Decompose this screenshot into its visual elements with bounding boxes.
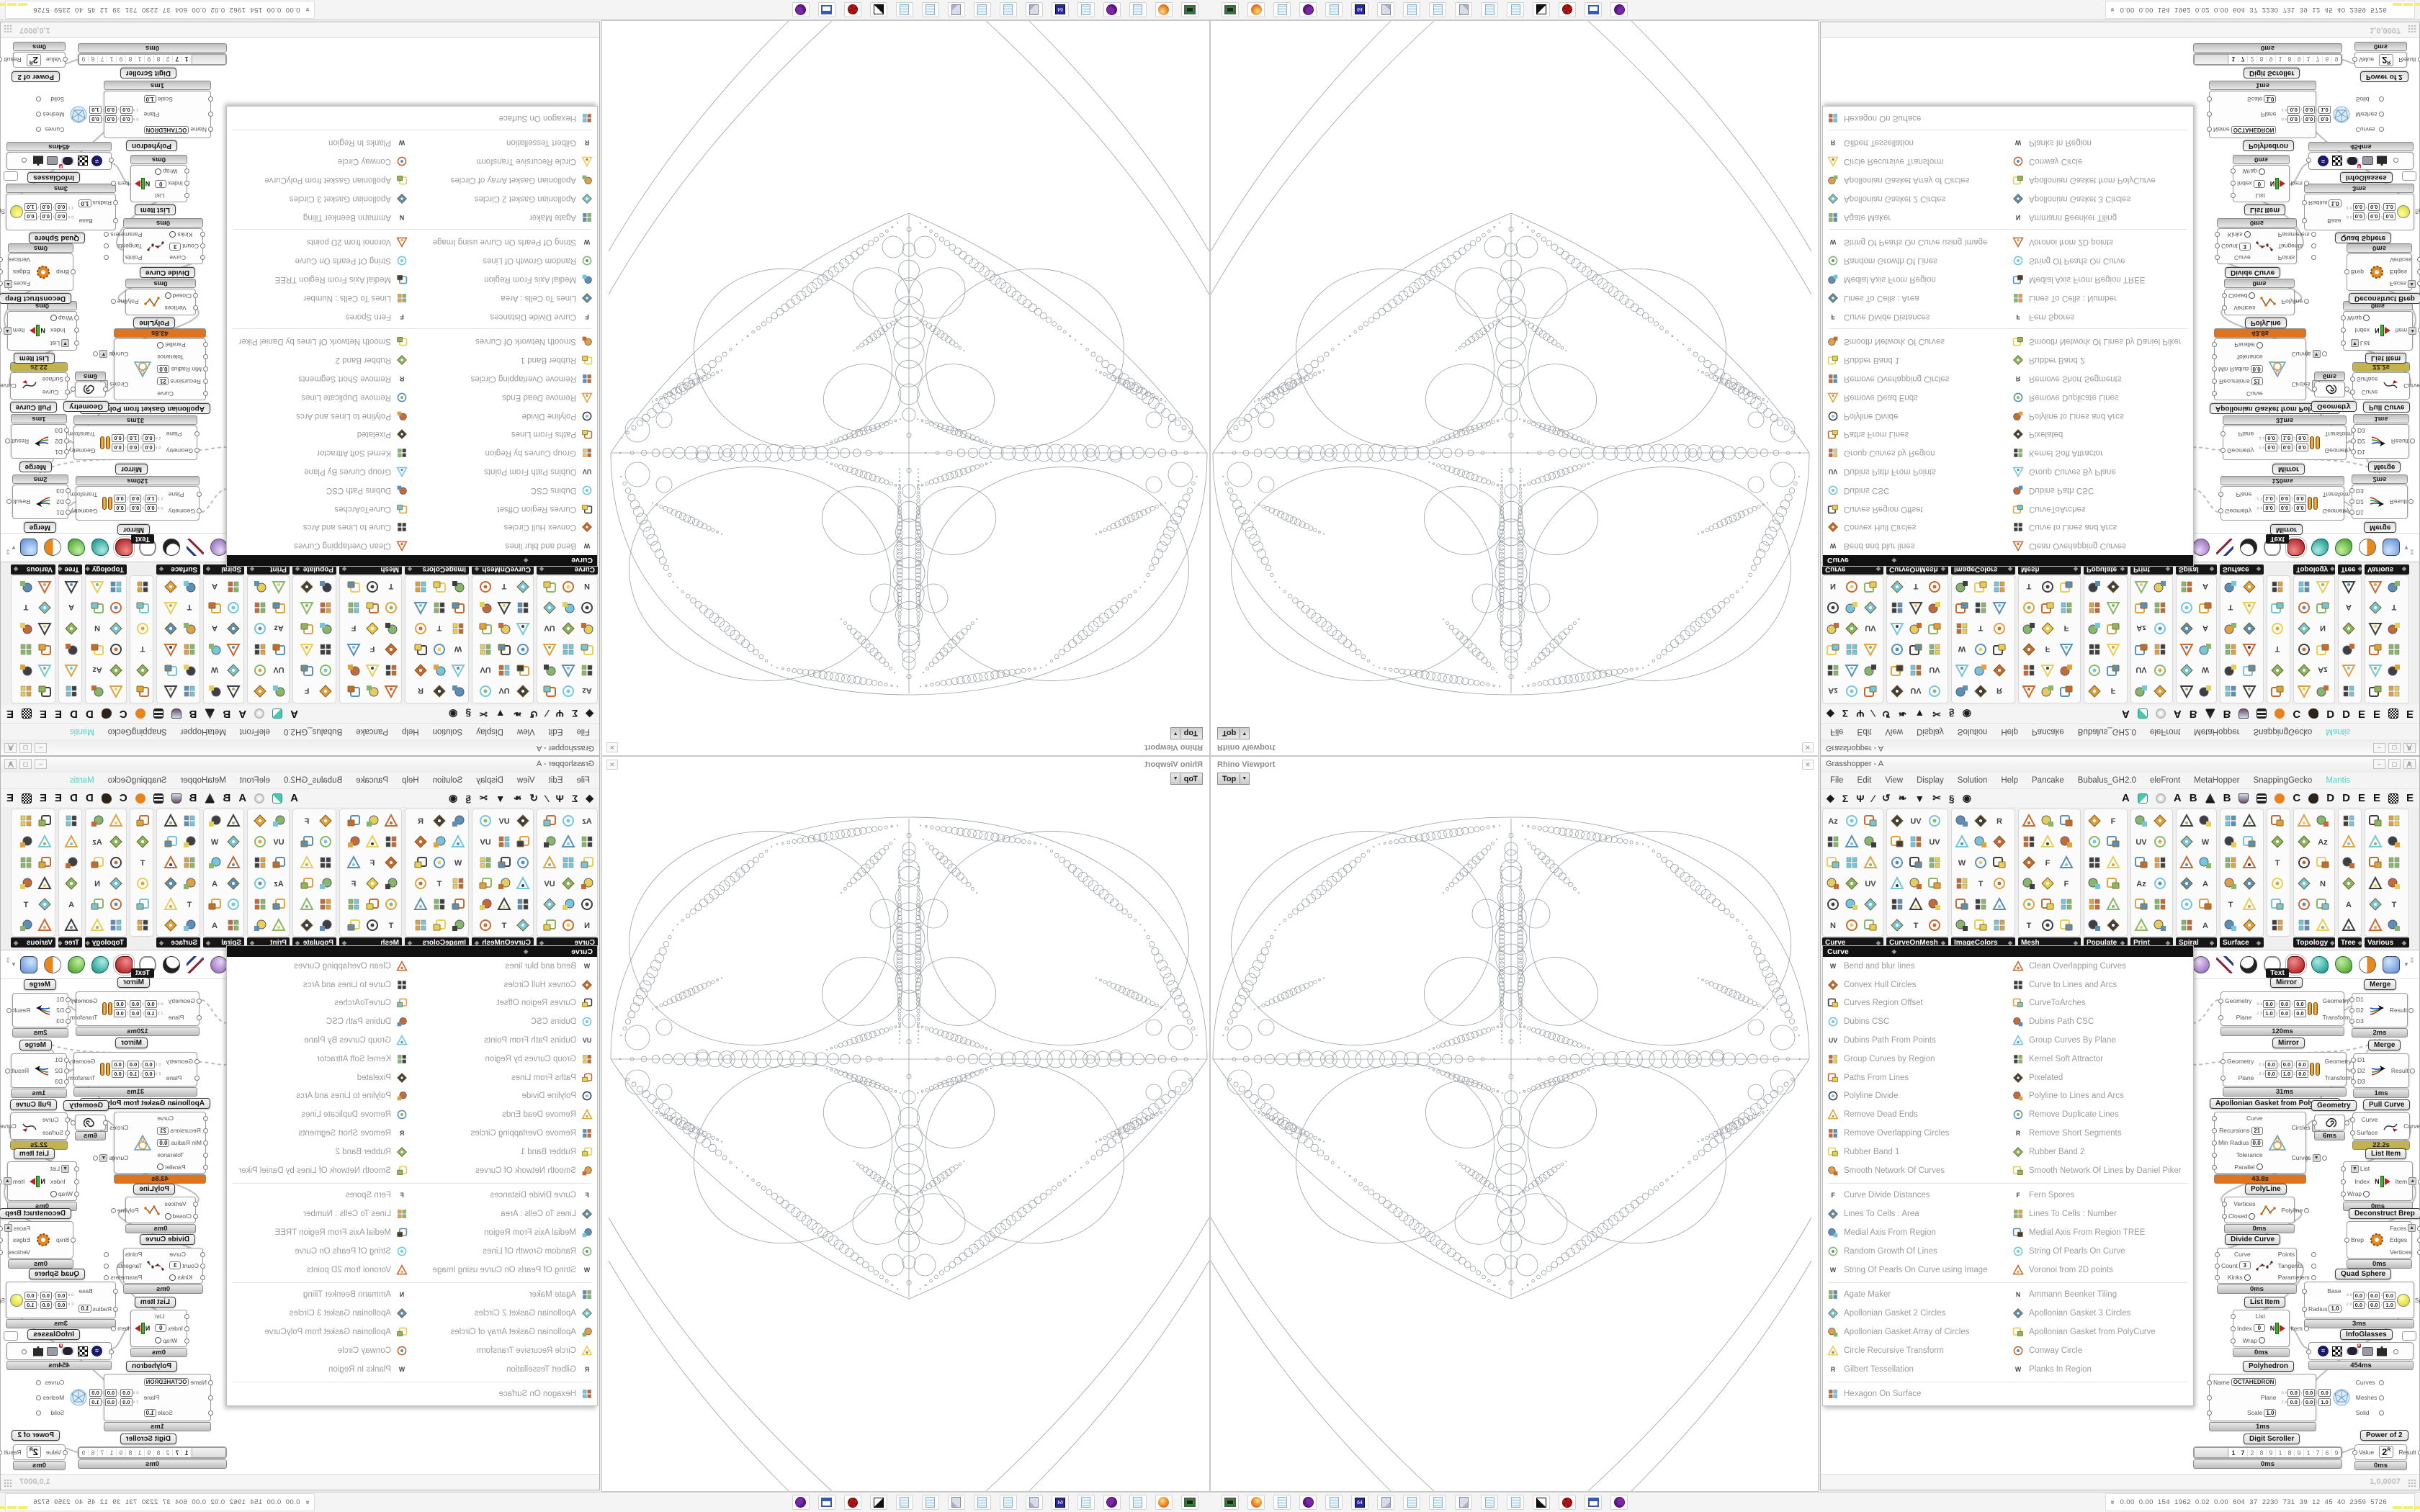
- digit-cell[interactable]: 7: [173, 1449, 182, 1457]
- component-list-item[interactable]: ▼ListIndexWrapNItem▲0ms: [2343, 301, 2413, 351]
- menu-item-remove-short-segments[interactable]: RRemove Short Segments: [2008, 369, 2193, 388]
- component-merge[interactable]: D1D2D3Result1ms: [11, 414, 67, 459]
- performance-widget[interactable]: » 0.00 0.00 154 1962 0.02 0.00 604 37 22…: [5, 1493, 315, 1511]
- component-quad-sphere[interactable]: BaseRadius1.0o x0.0y0.0z0.0z x0.0y0.0z1.…: [6, 184, 116, 230]
- output-result[interactable]: Result: [9, 437, 31, 446]
- value-box[interactable]: 1.0: [2263, 495, 2275, 503]
- value-box[interactable]: 0.0: [2296, 1061, 2308, 1068]
- palette-icon[interactable]: [2104, 852, 2123, 873]
- category-glyph-icon[interactable]: ↺: [1882, 792, 1891, 804]
- menu-item-rubber-band-2[interactable]: Rubber Band 2: [227, 1143, 412, 1161]
- input-list[interactable]: ▼List: [48, 338, 75, 348]
- value-box[interactable]: 0.0: [112, 434, 123, 442]
- value-box[interactable]: 0.0: [143, 1061, 154, 1068]
- component-nametag-deconstruct-brep[interactable]: Deconstruct Brep: [0, 293, 71, 304]
- leaf-icon[interactable]: [272, 709, 282, 719]
- category-glyph-icon[interactable]: ◆: [586, 792, 593, 804]
- component-nametag-list-item[interactable]: List Item: [14, 353, 55, 364]
- component-list-item[interactable]: ▼ListIndexWrapNItem▲0ms: [2343, 1161, 2413, 1211]
- toggle-circle[interactable]: [2363, 1191, 2370, 1197]
- palette-icon[interactable]: [430, 577, 449, 598]
- toggle-circle[interactable]: [50, 315, 57, 321]
- input-closed[interactable]: Closed: [163, 1212, 194, 1220]
- palette-icon[interactable]: [578, 852, 596, 873]
- component-polyline[interactable]: VerticesClosedPolyline0ms: [125, 279, 196, 315]
- palette-icon[interactable]: [2132, 894, 2151, 914]
- maximize-button[interactable]: ◻: [19, 759, 32, 769]
- polygon-blue-icon[interactable]: [20, 539, 37, 557]
- menu-item-medial-axis-from-region-tree[interactable]: Medial Axis From Region TREE: [227, 270, 412, 289]
- output-parameters[interactable]: Parameters: [108, 230, 144, 239]
- palette-icon[interactable]: [107, 577, 125, 598]
- menu-item-curve-divide-distances[interactable]: FCurve Divide Distances: [1823, 1187, 2008, 1205]
- palette-icon[interactable]: F: [2104, 681, 2123, 702]
- category-tab-E[interactable]: E: [55, 792, 62, 804]
- value-box[interactable]: 0.0: [24, 1292, 36, 1300]
- value-box[interactable]: 0.0: [2303, 115, 2315, 123]
- category-glyph-icon[interactable]: Σ: [572, 793, 578, 804]
- pin-teal-icon[interactable]: [91, 539, 109, 557]
- palette-icon[interactable]: [35, 894, 54, 914]
- input-d3[interactable]: D3: [2354, 1017, 2366, 1025]
- component-merge[interactable]: D1D2D3Result1ms: [2353, 414, 2409, 459]
- palette-icon[interactable]: [1971, 681, 1990, 702]
- palette-icon[interactable]: [251, 810, 269, 831]
- component-divide-curve[interactable]: CurveCount3KinksPointsTangentsParameters…: [2217, 218, 2297, 264]
- input-closed[interactable]: Closed: [163, 292, 194, 300]
- menu-item-dubins-csc[interactable]: Dubins CSC: [412, 481, 597, 500]
- menu-item-display[interactable]: Display: [1917, 727, 1944, 736]
- palette-icon[interactable]: [1888, 810, 1906, 831]
- value-box[interactable]: 0.0: [2296, 434, 2308, 442]
- palette-icon[interactable]: [476, 873, 495, 894]
- output-port[interactable]: [2341, 1122, 2345, 1123]
- notepad-icon[interactable]: [974, 1495, 991, 1510]
- menu-item-string-of-pearls-on-curve[interactable]: String Of Pearls On Curve: [2008, 251, 2193, 270]
- input-value[interactable]: Value: [2357, 1448, 2376, 1457]
- toggle-circle[interactable]: [155, 1337, 161, 1344]
- output-item[interactable]: Item: [2288, 179, 2305, 188]
- palette-icon[interactable]: A: [2196, 618, 2215, 639]
- value-box[interactable]: 0.0: [130, 504, 141, 512]
- shield-icon[interactable]: [2238, 709, 2249, 719]
- palette-icon[interactable]: [559, 598, 578, 618]
- palette-icon[interactable]: [2020, 639, 2038, 660]
- palette-icon[interactable]: [2268, 894, 2287, 914]
- component-geometry[interactable]: 6ms: [75, 372, 106, 397]
- palette-icon[interactable]: [316, 831, 335, 852]
- category-glyph-icon[interactable]: ▼: [1914, 793, 1924, 804]
- value-box[interactable]: 0.0: [105, 1398, 117, 1406]
- output-curves[interactable]: Curves: [2354, 125, 2380, 134]
- palette-icon[interactable]: [2020, 810, 2038, 831]
- palette-icon[interactable]: [180, 681, 199, 702]
- palette-icon[interactable]: A: [2339, 598, 2358, 618]
- menu-item-remove-overlapping-circles[interactable]: Remove Overlapping Circles: [412, 1124, 597, 1143]
- value-box[interactable]: 0.0: [2383, 213, 2395, 221]
- palette-icon[interactable]: [2151, 852, 2169, 873]
- category-glyph-icon[interactable]: ❧: [1899, 708, 1907, 720]
- palette-icon[interactable]: F: [363, 639, 382, 660]
- palette-icon[interactable]: [1861, 914, 1880, 935]
- palette-icon[interactable]: [251, 831, 269, 852]
- digit-cell[interactable]: 1: [135, 1449, 145, 1457]
- input-plane[interactable]: Plane: [142, 1393, 209, 1402]
- palette-icon[interactable]: [344, 660, 363, 681]
- menu-item-circle-recursive-transform[interactable]: Circle Recursive Transform: [1823, 1341, 2008, 1360]
- input-tolerance[interactable]: Tolerance: [155, 353, 204, 361]
- palette-icon[interactable]: [224, 618, 243, 639]
- digit-cell[interactable]: 1: [182, 56, 192, 63]
- palette-icon[interactable]: [1824, 639, 1842, 660]
- sphere-orange-icon[interactable]: [2359, 956, 2376, 973]
- input-d2[interactable]: D2: [2355, 437, 2367, 446]
- digit-cell[interactable]: 9: [2294, 56, 2303, 63]
- viewport-projection-tab[interactable]: Top▼: [1170, 727, 1203, 739]
- palette-icon[interactable]: [449, 660, 467, 681]
- input-index[interactable]: Index0: [2235, 179, 2267, 189]
- digit-slider[interactable]: [2195, 1448, 2228, 1457]
- bird-icon[interactable]: [2308, 709, 2318, 719]
- category-glyph-icon[interactable]: Ψ: [1856, 793, 1864, 804]
- menu-item-display[interactable]: Display: [476, 727, 503, 736]
- palette-icon[interactable]: [2132, 810, 2151, 831]
- notepad-icon[interactable]: [1077, 2, 1095, 17]
- palette-icon[interactable]: Az: [88, 831, 107, 852]
- value-box[interactable]: 0.0: [24, 213, 36, 221]
- output-port[interactable]: [2341, 389, 2345, 390]
- bird-icon[interactable]: [102, 793, 112, 804]
- window-icon[interactable]: [1585, 1495, 1602, 1510]
- input-vertices[interactable]: Vertices: [2226, 304, 2257, 312]
- output-vertices[interactable]: Vertices: [2, 256, 32, 264]
- palette-icon[interactable]: [269, 914, 288, 935]
- output-result[interactable]: Result: [2, 55, 24, 64]
- category-tab-E[interactable]: E: [2406, 708, 2414, 720]
- value-box[interactable]: 0.0: [127, 444, 139, 451]
- palette-icon[interactable]: [2038, 681, 2057, 702]
- palette-icon[interactable]: [559, 831, 578, 852]
- firefox-icon[interactable]: [1247, 2, 1265, 17]
- palette-icon[interactable]: [578, 894, 596, 914]
- palette-icon[interactable]: [2221, 639, 2240, 660]
- palette-icon[interactable]: [1842, 598, 1861, 618]
- menu-item-smooth-network-of-lines-by-daniel-piker[interactable]: Smooth Network Of Lines by Daniel Piker: [227, 1161, 412, 1180]
- output-geometry[interactable]: Geometry: [2321, 996, 2352, 1005]
- palette-icon[interactable]: [251, 852, 269, 873]
- component-power-of-2[interactable]: Value2RResult0ms: [2354, 42, 2407, 68]
- palette-icon[interactable]: [2366, 894, 2385, 914]
- category-tab-B[interactable]: B: [189, 792, 197, 804]
- category-tab-C[interactable]: C: [120, 708, 127, 720]
- component-nametag-mirror[interactable]: Mirror: [115, 1038, 148, 1048]
- component-apollonian-gasket-from-polycurve[interactable]: CurveRecursions21Min Radius0.0ToleranceP…: [114, 328, 206, 400]
- output-transform[interactable]: Transform: [2321, 1013, 2352, 1022]
- pin-teal-icon[interactable]: [91, 956, 109, 973]
- input-index[interactable]: Index: [2345, 1177, 2372, 1186]
- menu-item-solution[interactable]: Solution: [1958, 727, 1988, 736]
- menu-item-fern-spores[interactable]: FFern Spores: [2008, 307, 2193, 326]
- component-nametag-merge[interactable]: Merge: [19, 1040, 52, 1050]
- palette-icon[interactable]: [2240, 810, 2259, 831]
- media-player-icon[interactable]: [1103, 1495, 1121, 1510]
- component-polyline[interactable]: VerticesClosedPolyline0ms: [125, 1197, 196, 1233]
- palette-icon[interactable]: UV: [540, 873, 559, 894]
- palette-icon[interactable]: [1861, 639, 1880, 660]
- output-parameters[interactable]: Parameters: [2276, 1273, 2312, 1282]
- palette-icon[interactable]: [180, 873, 199, 894]
- component-nametag-merge[interactable]: Merge: [2364, 522, 2396, 533]
- palette-icon[interactable]: [2104, 598, 2123, 618]
- menu-item-lines-to-cells-area[interactable]: Lines To Cells : Area: [412, 289, 597, 307]
- category-glyph-icon[interactable]: ◆: [586, 708, 593, 720]
- palette-icon[interactable]: [297, 852, 316, 873]
- palette-icon[interactable]: [1953, 810, 1971, 831]
- output-item[interactable]: Item▲: [2393, 326, 2419, 336]
- component-polyhedron[interactable]: NameOCTAHEDRONPlaneScale1.0o x0.0y0.0z0.…: [104, 81, 211, 138]
- palette-icon[interactable]: Az: [2313, 831, 2332, 852]
- maximize-button[interactable]: ◻: [19, 743, 32, 753]
- digit-cell[interactable]: 6: [89, 56, 98, 63]
- category-glyph-icon[interactable]: Σ: [572, 708, 578, 720]
- menu-item-dubins-csc[interactable]: Dubins CSC: [1823, 481, 2008, 500]
- menu-item-view[interactable]: View: [517, 776, 535, 785]
- input-closed[interactable]: Closed: [2226, 292, 2257, 300]
- palette-icon[interactable]: [133, 618, 152, 639]
- value-box[interactable]: 1.0: [89, 106, 101, 114]
- input-brep[interactable]: Brep: [2349, 268, 2366, 276]
- digit-cell[interactable]: 8: [154, 56, 163, 63]
- value-box[interactable]: 3: [2239, 243, 2251, 251]
- palette-icon[interactable]: [1990, 618, 2009, 639]
- palette-icon[interactable]: UV: [1925, 831, 1944, 852]
- palette-icon[interactable]: [430, 681, 449, 702]
- component-nametag-pull-curve[interactable]: Pull Curve: [10, 1099, 57, 1110]
- palette-icon[interactable]: [2196, 639, 2215, 660]
- category-tab-D[interactable]: D: [70, 708, 78, 720]
- sphere-orange-icon[interactable]: [2359, 539, 2376, 557]
- input-curve[interactable]: Curve: [167, 253, 201, 262]
- palette-icon[interactable]: [2240, 873, 2259, 894]
- palette-icon[interactable]: [88, 894, 107, 914]
- menu-item-conway-circle[interactable]: Conway Circle: [227, 152, 412, 171]
- value-box[interactable]: 1.0: [127, 434, 139, 442]
- input-name[interactable]: NameOCTAHEDRON: [2211, 125, 2278, 135]
- palette-icon[interactable]: [2196, 852, 2215, 873]
- menu-item-clean-overlapping-curves[interactable]: Clean Overlapping Curves: [227, 536, 412, 555]
- palette-icon[interactable]: [559, 873, 578, 894]
- palette-icon[interactable]: A: [2196, 914, 2215, 935]
- palette-icon[interactable]: [205, 852, 224, 873]
- firefox-icon[interactable]: [1155, 1495, 1173, 1510]
- menu-item-lines-to-cells-number[interactable]: Lines To Cells : Number: [2008, 289, 2193, 307]
- palette-icon[interactable]: [559, 639, 578, 660]
- palette-icon[interactable]: [2313, 894, 2332, 914]
- component-nametag-power-of-2[interactable]: Power of 2: [12, 71, 60, 82]
- palette-icon[interactable]: [2151, 914, 2169, 935]
- notepad-icon[interactable]: [1325, 1495, 1343, 1510]
- input-radius[interactable]: Radius1.0: [76, 1304, 114, 1313]
- grid-icon[interactable]: [153, 709, 163, 719]
- shaded-cylinder-icon[interactable]: [2287, 956, 2305, 973]
- palette-icon[interactable]: [17, 618, 35, 639]
- menu-item-polyline-to-lines-and-arcs[interactable]: Polyline to Lines and Arcs: [2008, 407, 2193, 426]
- palette-icon[interactable]: [2104, 831, 2123, 852]
- digit-cell[interactable]: 1: [2228, 56, 2238, 63]
- digit-cell[interactable]: 9: [145, 1449, 154, 1457]
- component-nametag-deconstruct-brep[interactable]: Deconstruct Brep: [2349, 293, 2420, 304]
- output-edges[interactable]: Edges: [2388, 1236, 2418, 1244]
- palette-icon[interactable]: [449, 831, 467, 852]
- palette-icon[interactable]: [382, 618, 400, 639]
- category-glyph-icon[interactable]: ▼: [496, 793, 506, 804]
- notepad-icon[interactable]: [1000, 2, 1017, 17]
- menu-item-curvetoarches[interactable]: CurveToArches: [227, 500, 412, 518]
- palette-icon[interactable]: Az: [1824, 810, 1842, 831]
- menu-item-edit[interactable]: Edit: [1857, 776, 1872, 785]
- output-vertices[interactable]: Vertices: [2388, 256, 2418, 264]
- menu-item-bend-and-blur-lines[interactable]: WBend and blur lines: [412, 957, 597, 976]
- input-base[interactable]: Base: [2306, 1287, 2344, 1295]
- menu-item-rubber-band-2[interactable]: Rubber Band 2: [2008, 351, 2193, 369]
- category-tab-B[interactable]: B: [2223, 708, 2231, 720]
- menu-item-apollonian-gasket-3-circles[interactable]: Apollonian Gasket 3 Circles: [2008, 189, 2193, 208]
- palette-icon[interactable]: F: [2038, 639, 2057, 660]
- palette-icon[interactable]: [1953, 914, 1971, 935]
- palette-icon[interactable]: W: [1953, 639, 1971, 660]
- palette-icon[interactable]: UV: [1925, 660, 1944, 681]
- palette-icon[interactable]: [2151, 831, 2169, 852]
- menu-item-conway-circle[interactable]: Conway Circle: [227, 1341, 412, 1360]
- digit-cell[interactable]: 9: [117, 1449, 126, 1457]
- speech-bubble-icon[interactable]: [4, 171, 18, 181]
- palette-icon[interactable]: [316, 577, 335, 598]
- palette-icon[interactable]: [2221, 873, 2240, 894]
- palette-icon[interactable]: T: [180, 598, 199, 618]
- output-result[interactable]: Result: [11, 1006, 32, 1014]
- palette-icon[interactable]: [297, 639, 316, 660]
- palette-icon[interactable]: [224, 598, 243, 618]
- palette-icon[interactable]: [161, 852, 180, 873]
- input-radius[interactable]: Radius1.0: [2306, 199, 2344, 208]
- palette-icon[interactable]: [2366, 914, 2385, 935]
- palette-icon[interactable]: [2339, 852, 2358, 873]
- palette-icon[interactable]: T: [495, 914, 514, 935]
- palette-icon[interactable]: [2132, 852, 2151, 873]
- menu-item-kernel-soft-attractor[interactable]: Kernel Soft Attractor: [2008, 1050, 2193, 1068]
- component-list-item[interactable]: ▼ListIndexWrapNItem▲0ms: [7, 301, 77, 351]
- palette-icon[interactable]: [180, 660, 199, 681]
- component-nametag-divide-curve[interactable]: Divide Curve: [2225, 1234, 2280, 1245]
- menu-item-lines-to-cells-area[interactable]: Lines To Cells : Area: [1823, 1205, 2008, 1223]
- input-surface[interactable]: Surface: [2354, 1128, 2380, 1137]
- palette-group-label-topology[interactable]: Topology◆: [2293, 937, 2335, 948]
- value-box[interactable]: 0.0: [105, 1389, 117, 1397]
- palette-icon[interactable]: [2385, 810, 2403, 831]
- palette-icon[interactable]: [2268, 681, 2287, 702]
- palette-icon[interactable]: [1990, 831, 2009, 852]
- palette-icon[interactable]: [430, 894, 449, 914]
- palette-icon[interactable]: [133, 873, 152, 894]
- value-box[interactable]: 0.0: [2294, 1009, 2305, 1017]
- dropdown-arrow-icon[interactable]: ▼: [11, 544, 17, 551]
- menu-item-polyline-to-lines-and-arcs[interactable]: Polyline to Lines and Arcs: [2008, 1087, 2193, 1106]
- input-geometry[interactable]: Geometry: [166, 508, 197, 516]
- palette-icon[interactable]: T: [2385, 598, 2403, 618]
- digit-cell[interactable]: 2: [2247, 56, 2257, 63]
- dither-icon[interactable]: [2388, 793, 2398, 804]
- menu-item-smooth-network-of-curves[interactable]: Smooth Network Of Curves: [412, 332, 597, 351]
- input-d1[interactable]: D1: [2354, 508, 2366, 517]
- palette-icon[interactable]: [1971, 914, 1990, 935]
- category-tab-B[interactable]: B: [223, 708, 230, 720]
- component-nametag-merge[interactable]: Merge: [24, 522, 56, 533]
- palette-icon[interactable]: [269, 810, 288, 831]
- menu-item-curve-to-lines-and-arcs[interactable]: Curve to Lines and Arcs: [2008, 518, 2193, 536]
- menu-item-bubalus_gh2.0[interactable]: Bubalus_GH2.0: [2078, 727, 2136, 736]
- sketch-curves-icon[interactable]: [187, 539, 204, 557]
- palette-icon[interactable]: [2366, 681, 2385, 702]
- output-solid[interactable]: Solid: [2354, 95, 2380, 104]
- component-nametag-list-item[interactable]: List Item: [2244, 1297, 2285, 1308]
- component-power-of-2[interactable]: Value2RResult0ms: [13, 1444, 66, 1470]
- palette-icon[interactable]: [382, 831, 400, 852]
- palette-icon[interactable]: T: [133, 852, 152, 873]
- palette-icon[interactable]: [363, 894, 382, 914]
- palette-icon[interactable]: [476, 852, 495, 873]
- category-glyph-icon[interactable]: ❧: [1899, 792, 1907, 804]
- palette-icon[interactable]: UV: [476, 660, 495, 681]
- window-icon[interactable]: [818, 2, 835, 17]
- palette-icon[interactable]: [2385, 660, 2403, 681]
- menu-item-kernel-soft-attractor[interactable]: Kernel Soft Attractor: [2008, 444, 2193, 462]
- palette-floating-label[interactable]: Text: [131, 968, 154, 978]
- notepad-icon[interactable]: [1273, 1495, 1291, 1510]
- component-geometry[interactable]: 6ms: [75, 1115, 106, 1140]
- palette-icon[interactable]: [1842, 681, 1861, 702]
- component-list-item[interactable]: ListIndex0WrapNItem0ms: [130, 155, 187, 202]
- palette-icon[interactable]: [344, 831, 363, 852]
- palette-icon[interactable]: [2295, 660, 2313, 681]
- sketch-curves-icon[interactable]: [2216, 956, 2233, 973]
- palette-icon[interactable]: [1906, 831, 1925, 852]
- toggle-circle[interactable]: [169, 1274, 176, 1281]
- menu-item-help[interactable]: Help: [2001, 727, 2018, 736]
- menu-item-curve-to-lines-and-arcs[interactable]: Curve to Lines and Arcs: [227, 976, 412, 994]
- palette-icon[interactable]: [62, 852, 81, 873]
- palette-icon[interactable]: UV: [495, 810, 514, 831]
- input-surface[interactable]: Surface: [2354, 375, 2380, 384]
- toggle-circle[interactable]: [155, 168, 161, 175]
- palette-icon[interactable]: [476, 577, 495, 598]
- monitor-icon[interactable]: [1181, 2, 1198, 17]
- palette-icon[interactable]: [430, 660, 449, 681]
- value-box[interactable]: 0.0: [2281, 444, 2293, 451]
- palette-icon[interactable]: W: [449, 852, 467, 873]
- palette-icon[interactable]: [1990, 639, 2009, 660]
- menu-item-lines-to-cells-number[interactable]: Lines To Cells : Number: [227, 289, 412, 307]
- output-transform[interactable]: Transform: [68, 1013, 99, 1022]
- value-box[interactable]: 1.0: [145, 495, 156, 503]
- toggle-circle[interactable]: [2249, 292, 2255, 299]
- component-polyhedron[interactable]: NameOCTAHEDRONPlaneScale1.0o x0.0y0.0z0.…: [104, 1374, 211, 1431]
- input-d2[interactable]: D2: [53, 437, 65, 446]
- output-result[interactable]: Result: [2396, 1448, 2418, 1457]
- menu-item-medial-axis-from-region-tree[interactable]: Medial Axis From Region TREE: [2008, 1223, 2193, 1242]
- value-box[interactable]: 0.0: [2318, 1389, 2330, 1397]
- value-box[interactable]: 0.0: [2368, 1292, 2380, 1300]
- palette-icon[interactable]: [2339, 660, 2358, 681]
